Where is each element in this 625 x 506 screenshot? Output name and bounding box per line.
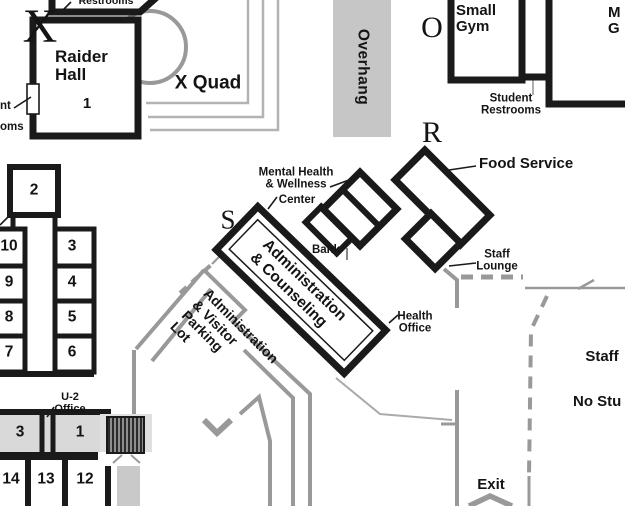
restrooms-top-label: Restrooms bbox=[79, 0, 134, 7]
no-students-partial-label: No Stu bbox=[573, 394, 621, 410]
room-5-number: 5 bbox=[68, 310, 77, 327]
south-room-1-number: 1 bbox=[76, 425, 85, 442]
mental-health-center-label: Center bbox=[279, 194, 315, 206]
room-9-number: 9 bbox=[5, 275, 14, 292]
u2-office-label: U-2 Office bbox=[54, 392, 85, 416]
student-restrooms-label: Student Restrooms bbox=[481, 93, 541, 118]
exit-label: Exit bbox=[477, 477, 505, 493]
bank-label: Bank bbox=[312, 244, 340, 256]
section-label-x: X bbox=[23, 1, 58, 53]
x-quad-label: X Quad bbox=[175, 74, 242, 95]
stair-treads bbox=[109, 418, 141, 452]
section-label-s: S bbox=[220, 205, 235, 234]
food-service-label: Food Service bbox=[479, 156, 573, 172]
x-quad-borders bbox=[146, 0, 278, 130]
south-room-3-number: 3 bbox=[16, 425, 25, 442]
mental-health-label: Mental Health & Wellness bbox=[259, 167, 334, 192]
small-gym-label: Small Gym bbox=[456, 3, 496, 35]
section-label-o: O bbox=[421, 12, 443, 44]
raider-hall-label: Raider Hall bbox=[55, 48, 108, 85]
stairs bbox=[98, 414, 154, 466]
room-3-number: 3 bbox=[68, 239, 77, 256]
section-label-r: R bbox=[422, 117, 442, 149]
room-14-number: 14 bbox=[2, 472, 19, 489]
walk-strip bbox=[117, 466, 140, 506]
overhang-label: Overhang bbox=[354, 29, 371, 105]
left-restrooms-partial-label: nt oms bbox=[0, 96, 24, 139]
room-4-number: 4 bbox=[68, 275, 77, 292]
staff-parking-label: Staff bbox=[585, 349, 618, 365]
room-7-number: 7 bbox=[5, 345, 14, 362]
room-12-number: 12 bbox=[76, 472, 93, 489]
north-rooms bbox=[0, 167, 94, 374]
health-office-label: Health Office bbox=[397, 311, 432, 336]
room-10-number: 10 bbox=[0, 239, 17, 256]
exit-chevron bbox=[469, 496, 512, 506]
main-gym-partial-label: M G bbox=[608, 5, 621, 37]
room-6-number: 6 bbox=[68, 345, 77, 362]
campus-map: X Restrooms Raider Hall 1 nt oms X Quad … bbox=[0, 0, 625, 506]
driveway-chevron bbox=[204, 420, 231, 433]
room-8-number: 8 bbox=[5, 310, 14, 327]
room-2-number: 2 bbox=[30, 183, 39, 200]
staff-lounge-label: Staff Lounge bbox=[476, 249, 518, 274]
raider-hall-number: 1 bbox=[83, 96, 91, 112]
room-13-number: 13 bbox=[37, 472, 54, 489]
